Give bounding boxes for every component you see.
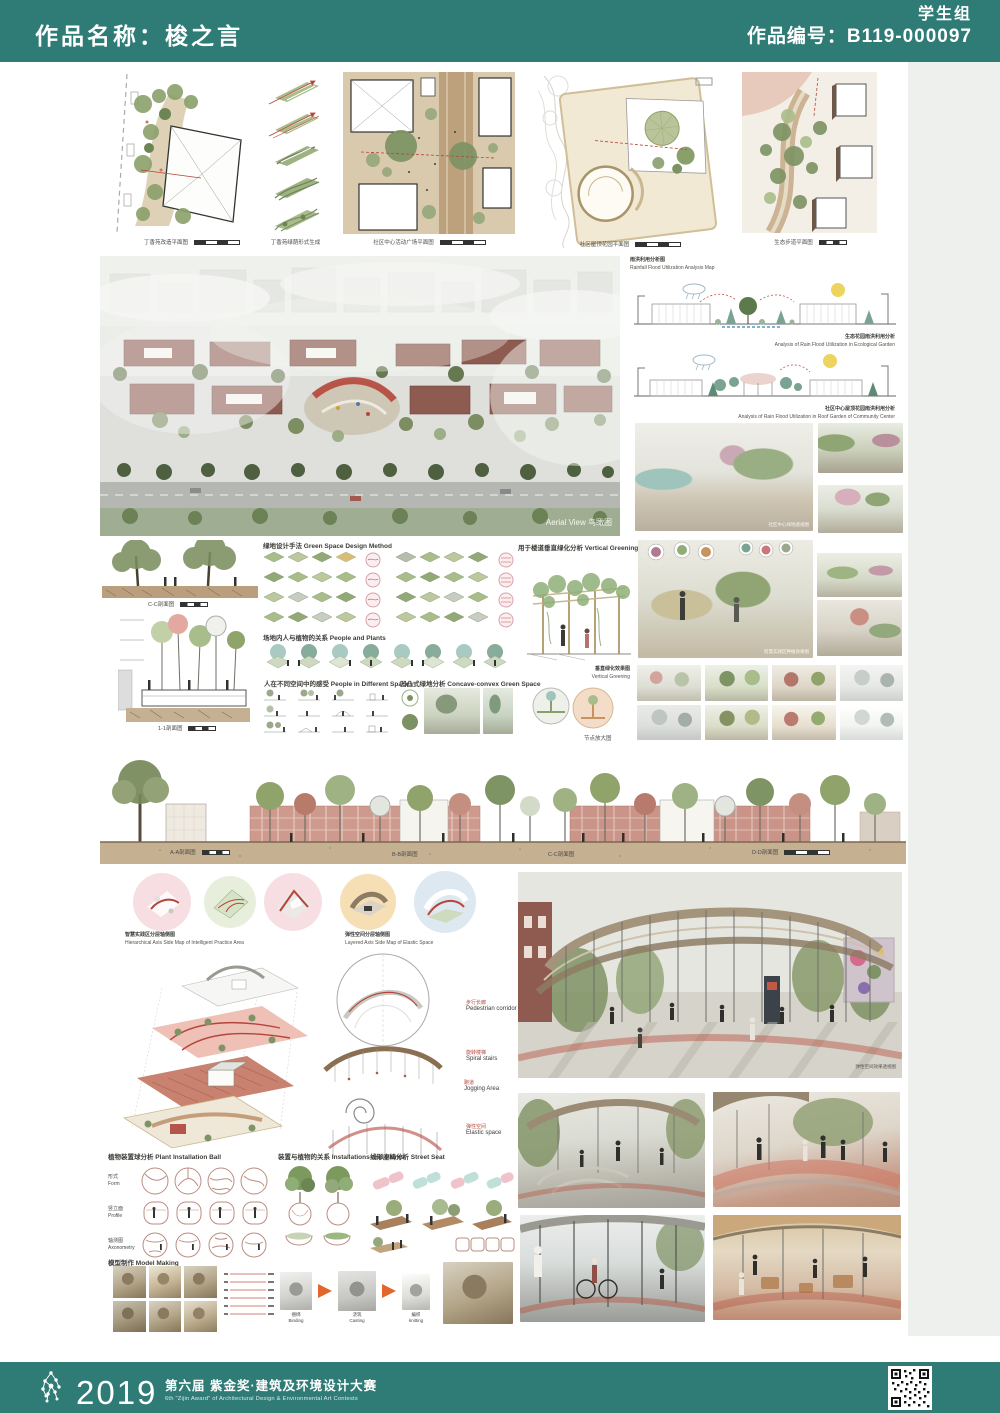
ball-row-profile [140, 1198, 270, 1228]
elastic-space-axon-drawing [315, 948, 450, 1166]
award-title-en: 6th "Zijin Award" of Architectural Desig… [165, 1396, 377, 1402]
render-elastic-3 [520, 1215, 705, 1322]
axon-bubble-2 [204, 876, 256, 928]
smart-area-axon-drawing [112, 958, 312, 1158]
people-spaces-title: 人在不同空间中的感受 People in Different Spaces [264, 678, 413, 688]
render-elastic-2 [713, 1092, 900, 1207]
step-caption: 编织knitting [394, 1312, 438, 1324]
step-caption: 浇筑Casting [334, 1312, 380, 1324]
render-green-path [818, 423, 903, 473]
scale-bar [188, 726, 216, 731]
section-caption: 1-1剖面图 [158, 724, 216, 732]
model-photo-grid [113, 1266, 217, 1332]
scale-bar [180, 602, 208, 607]
seasonal-photo [637, 705, 701, 741]
render-elastic-4 [713, 1215, 901, 1320]
scale-bar [784, 850, 830, 855]
render-elastic-1 [518, 1093, 705, 1208]
street-seat-title: 线形座椅分析 Street Seat [370, 1151, 445, 1161]
row-label-form: 形式Form [108, 1174, 120, 1187]
render-cycling [818, 485, 903, 533]
diagram-plan-bubbles-2 [497, 552, 515, 628]
detail-caption: 节点放大图 [584, 734, 612, 742]
diagram-form-generation [265, 74, 323, 232]
planter-section-drawing [118, 612, 258, 730]
rain-diagram-roof-garden [630, 352, 900, 407]
process-arrow-icon [382, 1284, 396, 1298]
street-section-label: B-B剖面图 [392, 850, 418, 858]
vertical-greening-caption: 垂直绿化效果图 Vertical Greening [555, 666, 630, 681]
footer-bar: 2019 第六届 紫金奖·建筑及环境设计大赛 6th "Zijin Award"… [0, 1362, 1000, 1413]
model-photo [149, 1301, 182, 1333]
model-step-photo-casting [338, 1271, 376, 1311]
render-planting-garden: 智慧实践区种植效果图 [638, 540, 813, 658]
smart-area-title: 智慧实践区分层轴侧图 Hierarchical Axis Side Map of… [125, 932, 244, 947]
axon-annotation: 旋转楼梯Spiral stairs [466, 1050, 497, 1064]
award-logo-icon [38, 1370, 64, 1406]
aerial-caption: Aerial View 鸟瞰图 [546, 517, 612, 528]
footer-award-title: 第六届 紫金奖·建筑及环境设计大赛 6th "Zijin Award" of A… [165, 1375, 377, 1402]
header-right: 学生组 作品编号：B119-000097 [747, 5, 972, 49]
model-final-photo [443, 1262, 513, 1324]
perspective-caption: 弹性空间效果透视图 [856, 1064, 897, 1070]
axon-annotation: 跑道Jogging Area [464, 1080, 499, 1094]
render-caption: 智慧实践区种植效果图 [764, 649, 809, 655]
plan-caption: 丁香苑绿荫形式生成 [248, 238, 343, 246]
diagram-people-plants-row [263, 642, 513, 674]
seasonal-photo-grid [637, 665, 903, 740]
street-section-label: D-D剖面图 [752, 848, 830, 856]
qr-code [888, 1366, 932, 1410]
step-caption: 捆绑Binding [274, 1312, 318, 1324]
rain-caption-1: 生态花园雨洪利用分析 Analysis of Rain Flood Utiliz… [700, 334, 895, 349]
rain-analysis-title: 雨洪利用分析图 Rainfall Flood Utilization Analy… [630, 257, 714, 272]
seasonal-photo [840, 665, 904, 701]
ball-row-axonometry [140, 1230, 270, 1260]
street-section-label: A-A剖面图 [170, 848, 230, 856]
elastic-space-perspective: 弹性空间效果透视图 [518, 872, 902, 1078]
axon-annotation: 步行长廊Pedestrian corridor [466, 1000, 517, 1014]
award-title-cn: 第六届 紫金奖·建筑及环境设计大赛 [165, 1375, 377, 1394]
render-community-green: 社区中心绿地透视图 [635, 423, 813, 531]
competition-poster: 作品名称：梭之言 学生组 作品编号：B119-000097 [0, 0, 1000, 1413]
scale-bar [635, 242, 681, 247]
elastic-space-title: 弹性空间分层轴侧图 Layered Axis Side Map of Elast… [345, 932, 433, 947]
seasonal-photo [772, 665, 836, 701]
green-method-title: 绿地设计手法 Green Space Design Method [263, 540, 392, 550]
seasonal-photo [840, 705, 904, 741]
row-label-profile: 竖立面Profile [108, 1206, 123, 1219]
photo-concave-2 [483, 688, 513, 734]
photo-garden-canyon [817, 600, 902, 656]
axon-bubble-1 [133, 873, 191, 931]
row-label-axonometry: 轴测图Axonometry [108, 1238, 135, 1251]
detail-circles [531, 684, 616, 732]
seasonal-photo [705, 705, 769, 741]
seat-scenes-drawing [368, 1198, 516, 1256]
axon-bubble-4 [340, 874, 396, 930]
rain-caption-2: 社区中心屋顶花园雨洪利用分析 Analysis of Rain Flood Ut… [690, 406, 895, 421]
scale-bar [440, 240, 486, 245]
aerial-view-rendering: Aerial View 鸟瞰图 [100, 256, 620, 536]
photo-flower-path [817, 553, 902, 597]
rain-diagram-eco-garden [630, 280, 900, 335]
section-caption: C-C剖面图 [148, 600, 208, 608]
header-bar: 作品名称：梭之言 学生组 作品编号：B119-000097 [0, 0, 1000, 62]
render-caption: 社区中心绿地透视图 [769, 522, 810, 528]
model-legend-lines [222, 1270, 280, 1316]
photo-concave-1 [424, 688, 480, 734]
scale-bar [194, 240, 240, 245]
pergola-drawing [527, 556, 631, 664]
axon-bubble-3 [264, 873, 322, 931]
street-section-label: C-C剖面图 [548, 850, 574, 858]
seasonal-photo [705, 665, 769, 701]
process-arrow-icon [318, 1284, 332, 1298]
plan-caption: 社区中心活动广场平面图 [352, 238, 507, 246]
seasonal-photo [637, 665, 701, 701]
plan-roof-garden [538, 70, 720, 248]
model-photo [184, 1301, 217, 1333]
axon-annotation: 弹性空间Elastic space [466, 1124, 501, 1138]
work-code: 作品编号：B119-000097 [747, 25, 972, 49]
footer-year: 2019 [76, 1374, 157, 1412]
seat-bars-drawing [368, 1162, 516, 1198]
plan-caption: 社区屋顶花园平面图 [548, 240, 713, 248]
diagram-plan-bubbles-1 [364, 552, 382, 628]
axon-bubble-5 [414, 871, 476, 933]
model-step-photo-binding [280, 1272, 312, 1310]
diagram-green-tiles-2 [396, 552, 491, 628]
plan-lilac-garden [113, 74, 251, 232]
sketch-grid-people-spaces [264, 688, 390, 736]
people-plants-title: 场地内人与植物的关系 People and Plants [263, 632, 386, 642]
work-name: 作品名称：梭之言 [35, 17, 243, 51]
concave-icons [400, 688, 420, 734]
plan-caption: 生态步道平面图 [748, 238, 873, 246]
concave-title: 凹凸式绿地分析 Concave-convex Green Space [400, 678, 541, 688]
model-photo [149, 1266, 182, 1298]
model-photo [113, 1301, 146, 1333]
installation-ball-title: 植物装置球分析 Plant Installation Ball [108, 1151, 221, 1161]
scale-bar [202, 850, 230, 855]
plan-eco-path [742, 72, 877, 233]
scale-bar [819, 240, 847, 245]
diagram-green-tiles-1 [264, 552, 359, 628]
model-photo [184, 1266, 217, 1298]
group-label: 学生组 [747, 5, 972, 25]
model-step-photo-knitting [402, 1274, 430, 1310]
plan-caption: 丁香苑改造平面图 [122, 238, 262, 246]
ball-row-form [140, 1166, 270, 1196]
seasonal-photo [772, 705, 836, 741]
plants-in-pots-drawing [282, 1162, 358, 1254]
plan-community-plaza [343, 72, 515, 234]
section-sketch-trees [102, 540, 258, 602]
right-margin [908, 62, 1000, 1336]
model-photo [113, 1266, 146, 1298]
